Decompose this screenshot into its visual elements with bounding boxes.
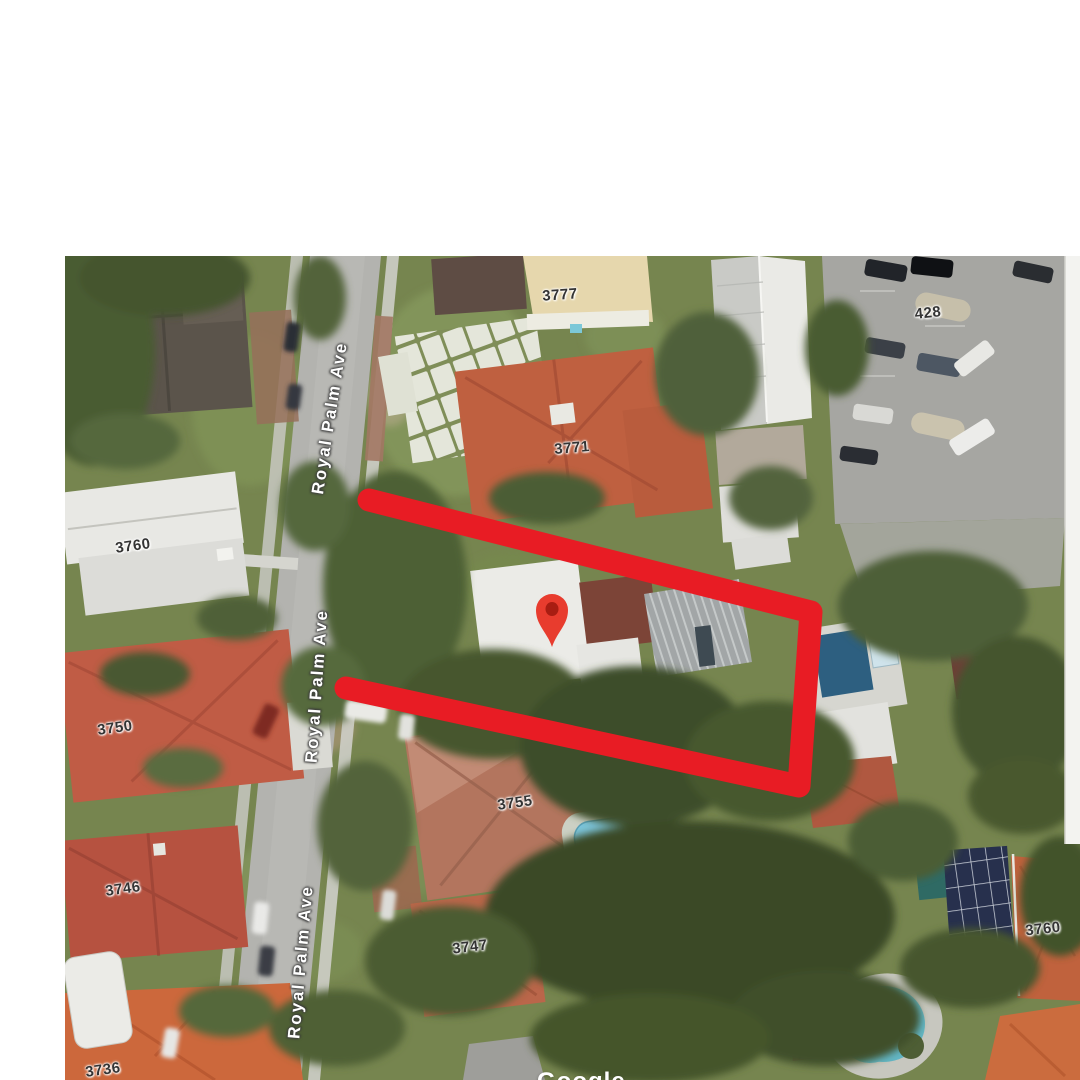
- street-label: Royal Palm Ave: [308, 340, 352, 496]
- house-number-label: 3760: [114, 535, 151, 557]
- google-watermark: Google: [537, 1068, 626, 1080]
- street-label: Royal Palm Ave: [284, 884, 317, 1039]
- house-number-label: 3746: [104, 878, 141, 900]
- house-number-label: 3771: [554, 438, 591, 458]
- house-number-label: 3747: [451, 936, 488, 957]
- house-number-label: 3755: [496, 792, 533, 814]
- house-number-label: 428: [914, 303, 942, 323]
- street-label: Royal Palm Ave: [302, 608, 333, 763]
- house-number-label: 3750: [96, 717, 133, 739]
- house-number-label: 3777: [542, 285, 578, 304]
- house-number-label: 3760: [1025, 919, 1062, 940]
- satellite-photo: Royal Palm AveRoyal Palm AveRoyal Palm A…: [65, 256, 1080, 1080]
- house-number-label: 3736: [84, 1059, 121, 1080]
- label-layer: Royal Palm AveRoyal Palm AveRoyal Palm A…: [65, 256, 1080, 1080]
- screenshot-canvas: Royal Palm AveRoyal Palm AveRoyal Palm A…: [0, 0, 1080, 1080]
